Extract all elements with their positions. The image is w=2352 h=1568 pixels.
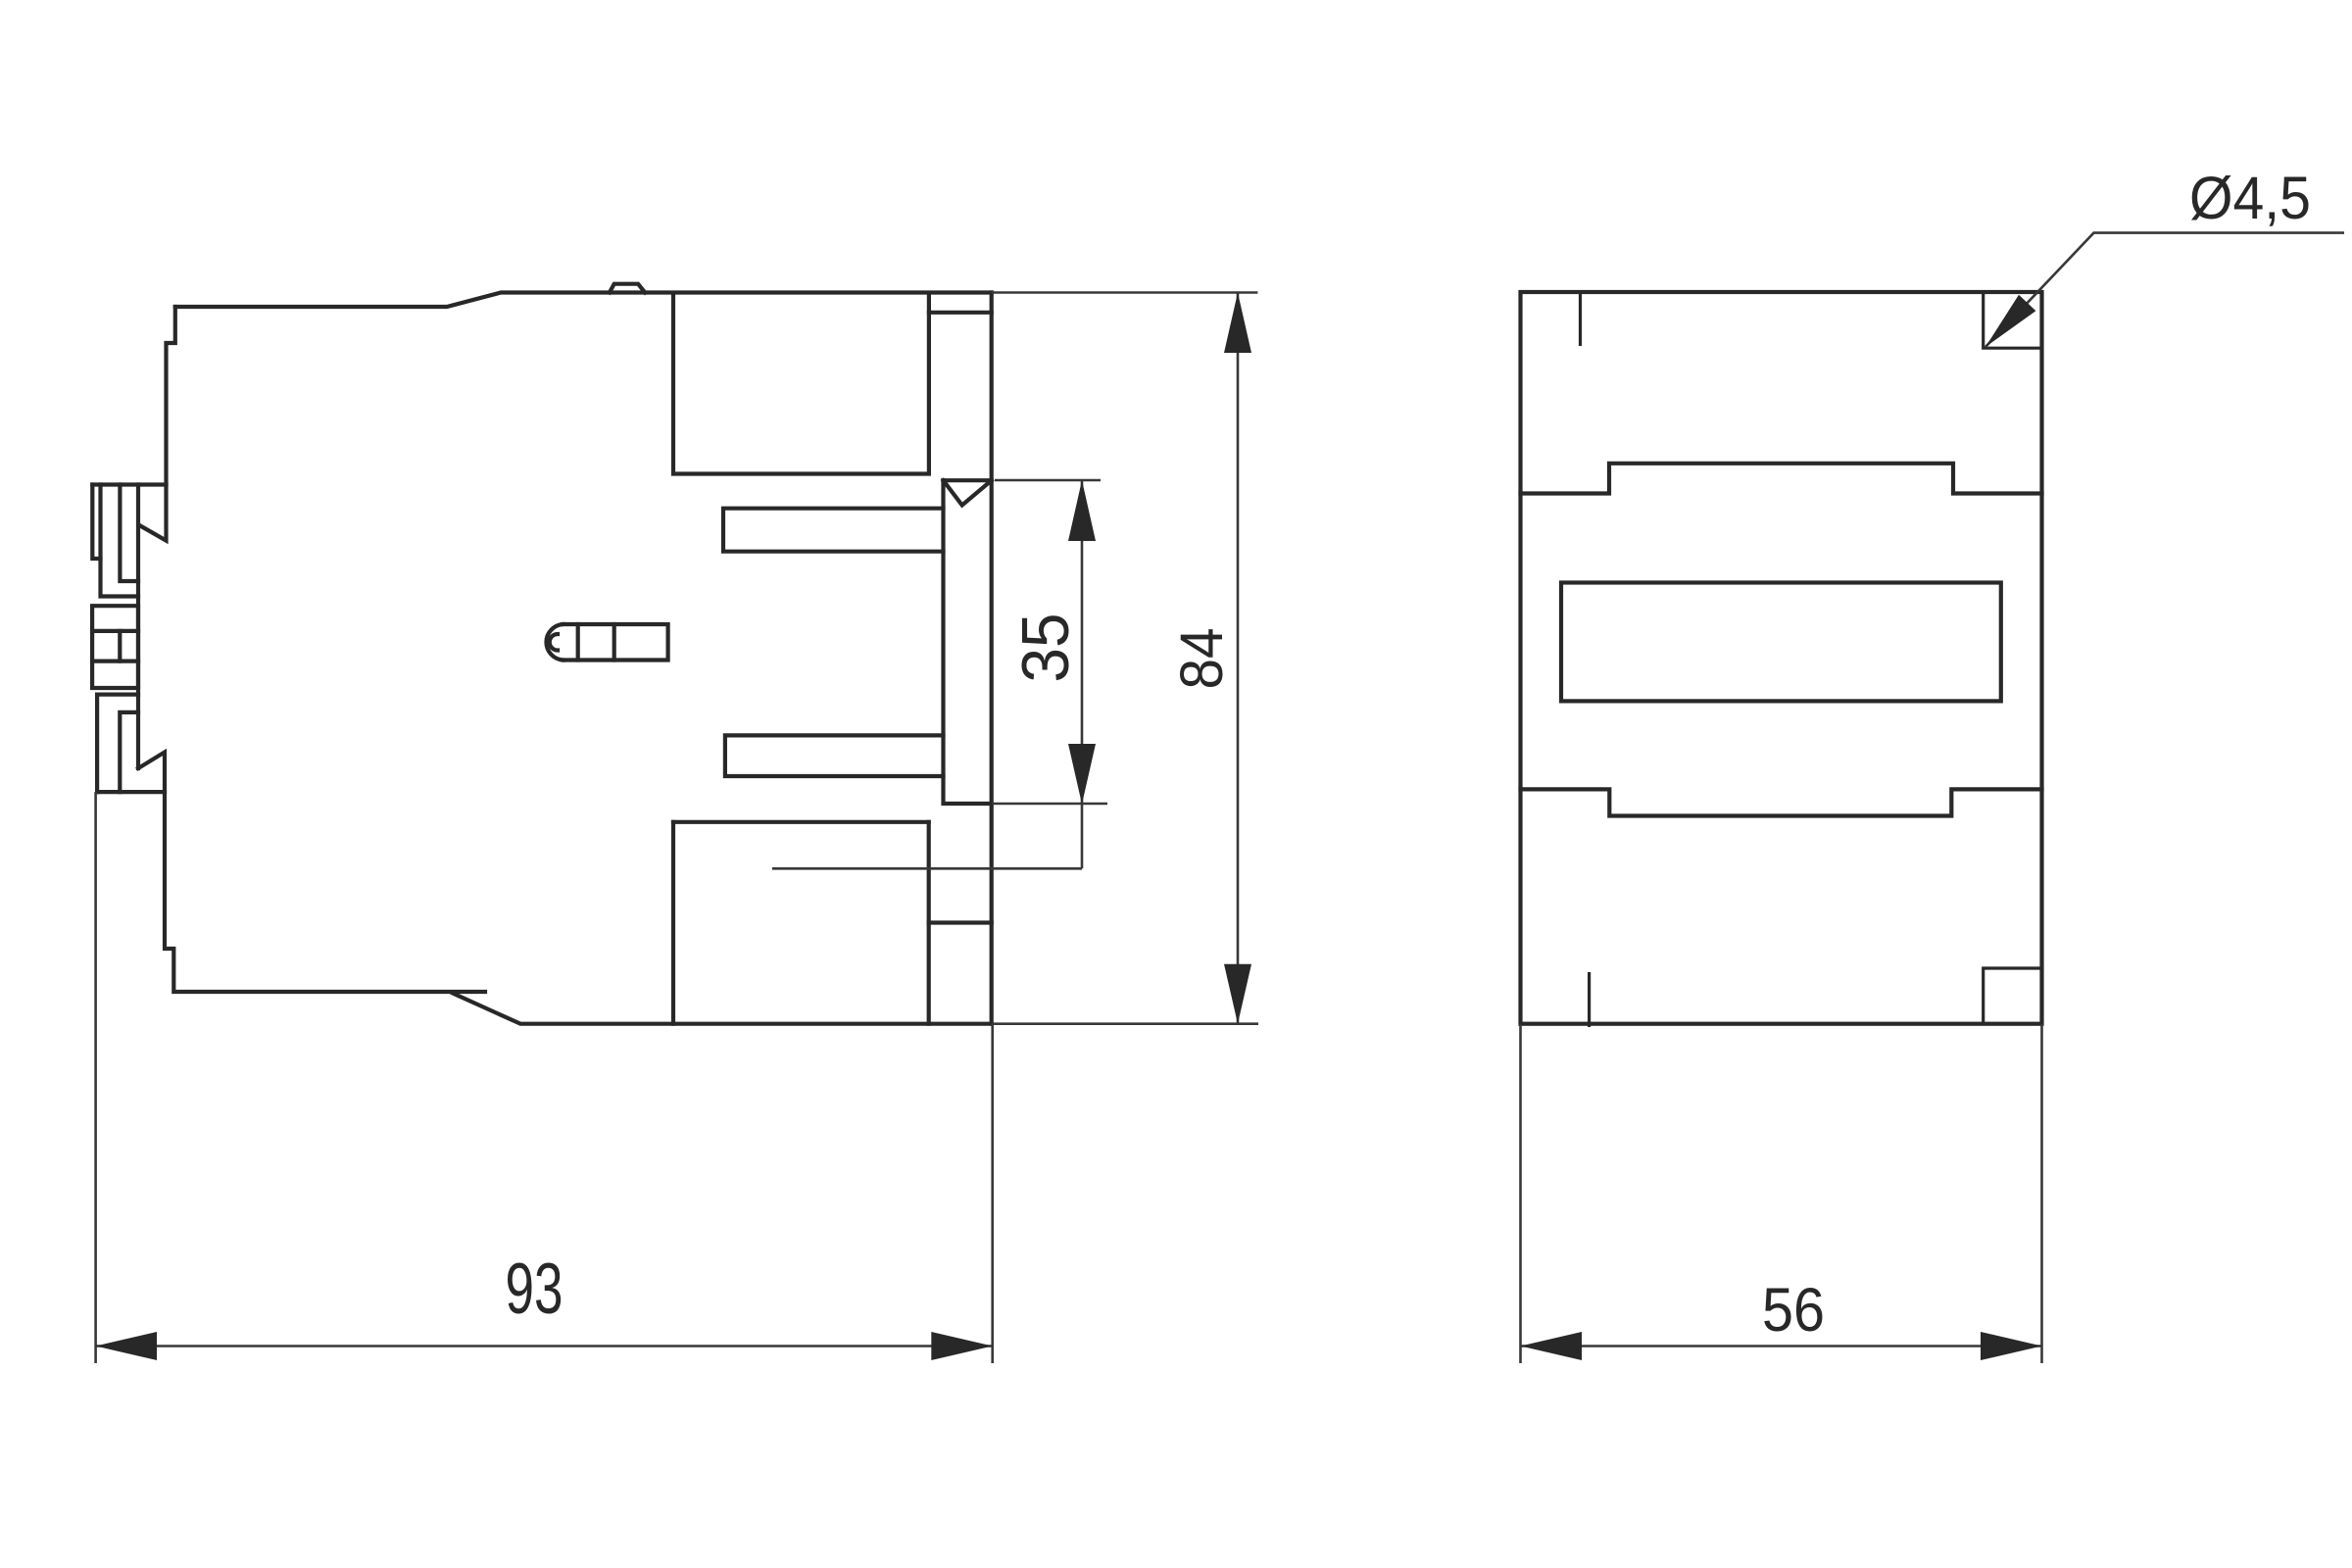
svg-text:56: 56	[1762, 1276, 1825, 1345]
svg-text:93: 93	[506, 1249, 563, 1329]
svg-text:Ø4,5: Ø4,5	[2189, 165, 2311, 231]
svg-text:35: 35	[1008, 613, 1083, 683]
svg-text:84: 84	[1168, 628, 1235, 690]
